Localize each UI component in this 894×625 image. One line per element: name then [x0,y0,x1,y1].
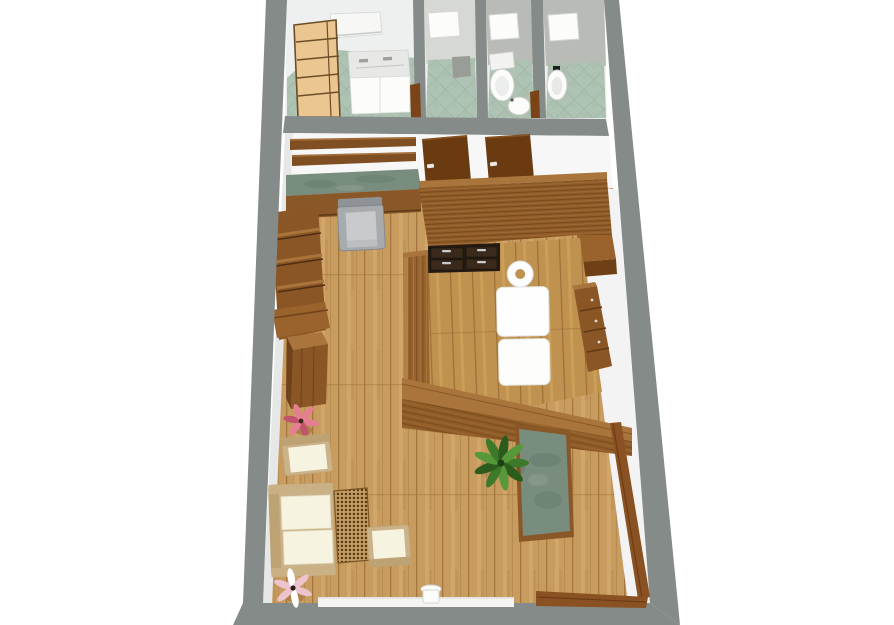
gray-armchair [337,197,386,251]
floorplan-render [0,0,894,625]
wall-cabinet [330,12,382,38]
corner-sink [508,97,530,115]
door-leaf-edge-1 [410,83,421,118]
entrance-threshold [318,597,514,607]
sink-cabinet [348,50,410,114]
drawer-unit [428,243,500,273]
rattan-coffee-table [334,488,371,563]
wc2-window-panel [548,13,579,41]
wooden-cabinet [286,332,328,409]
wc1-window-panel [489,13,519,40]
top-rooms [285,0,607,119]
reception-desk [515,424,574,542]
door-leaf-edge-2 [530,90,540,118]
wall-shower-wc1 [475,0,488,118]
armchair-1 [281,433,333,476]
shower-window-panel [428,11,460,38]
floorplan-canvas [0,0,894,625]
divider-wall [283,116,609,136]
toilet [489,52,516,102]
white-stool [421,585,441,603]
wall-stub [452,56,471,78]
wc-door-2 [485,134,534,183]
ladder-shelf [294,20,340,117]
wc-door-1 [422,135,471,186]
armchair-2 [367,525,412,568]
sofa [268,483,335,577]
